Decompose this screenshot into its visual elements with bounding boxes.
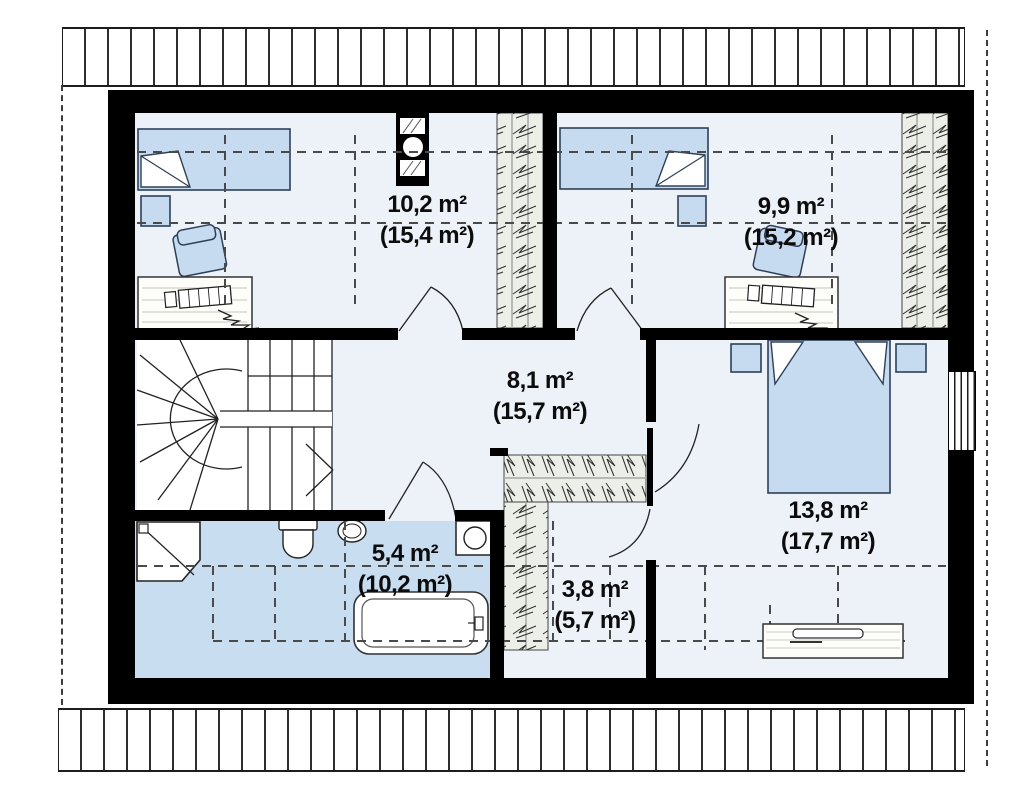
shower [137,522,200,581]
room-area: 10,2 m² [380,189,474,220]
stairs [137,340,333,510]
wall-exterior-left [108,90,135,704]
wall-room1-hall-right [462,328,557,340]
dresser [763,624,903,658]
wall-rooms-divider [543,113,557,340]
toilet [279,519,317,558]
room-total-area: (10,2 m²) [358,569,452,600]
room-area: 9,9 m² [744,191,838,222]
room-label-hall: 8,1 m² (15,7 m²) [493,365,587,427]
single-bed-room1 [138,129,290,190]
floor-plan: 10,2 m² (15,4 m²) 9,9 m² (15,2 m²) 8,1 m… [0,0,1024,786]
room-total-area: (15,4 m²) [380,220,474,251]
closet-strip-room2 [902,113,948,328]
room-area: 8,1 m² [493,365,587,396]
room-label-bathroom: 5,4 m² (10,2 m²) [358,538,452,600]
wall-exterior-bottom [108,678,974,704]
room-total-area: (15,7 m²) [493,396,587,427]
chimney [396,113,429,186]
desk-room2 [725,277,838,333]
wall-room2-hall-right [640,328,948,340]
nightstand-room2 [678,196,706,226]
wall-bathroom-right [490,510,504,678]
room-label-child-room-2: 9,9 m² (15,2 m²) [744,191,838,253]
room-label-wardrobe: 3,8 m² (5,7 m²) [554,574,635,636]
wall-room1-hall-left [135,328,398,340]
door-room2 [577,288,643,331]
room-label-child-room-1: 10,2 m² (15,4 m²) [380,189,474,251]
door-room1 [399,287,463,331]
door-wardrobe [609,509,650,557]
room-area: 3,8 m² [554,574,635,605]
wall-room2-hall-left [557,328,575,340]
wall-bedroom-upper [646,338,656,422]
desk-chair-room1 [171,223,227,277]
door-bathroom [389,462,456,519]
room-total-area: (17,7 m²) [781,526,875,557]
double-bed [768,340,890,493]
wall-bedroom-lower [646,560,656,678]
room-area: 13,8 m² [781,495,875,526]
closet-strip-room1 [497,113,543,328]
bathtub [354,592,488,654]
door-bedroom [655,424,699,492]
room-total-area: (15,2 m²) [744,222,838,253]
nightstand-room1 [141,196,170,226]
room-area: 5,4 m² [358,538,452,569]
bedroom-door-leaf [647,428,653,506]
nightstand-bedroom-left [731,344,761,372]
desk-room1 [138,277,259,330]
bedroom-window [948,371,976,451]
wall-bathroom-top-left [135,510,385,521]
wall-exterior-top [108,90,974,113]
closet-strip-wardrobe-left [504,502,548,650]
wall-wardrobe-stub [490,448,508,456]
room-total-area: (5,7 m²) [554,605,635,636]
bathtub-tap [475,617,483,630]
single-bed-room2 [560,128,708,189]
washing-machine [456,521,494,555]
closet-strip-wardrobe-top [504,455,646,502]
nightstand-bedroom-right [896,344,926,372]
room-label-bedroom: 13,8 m² (17,7 m²) [781,495,875,557]
